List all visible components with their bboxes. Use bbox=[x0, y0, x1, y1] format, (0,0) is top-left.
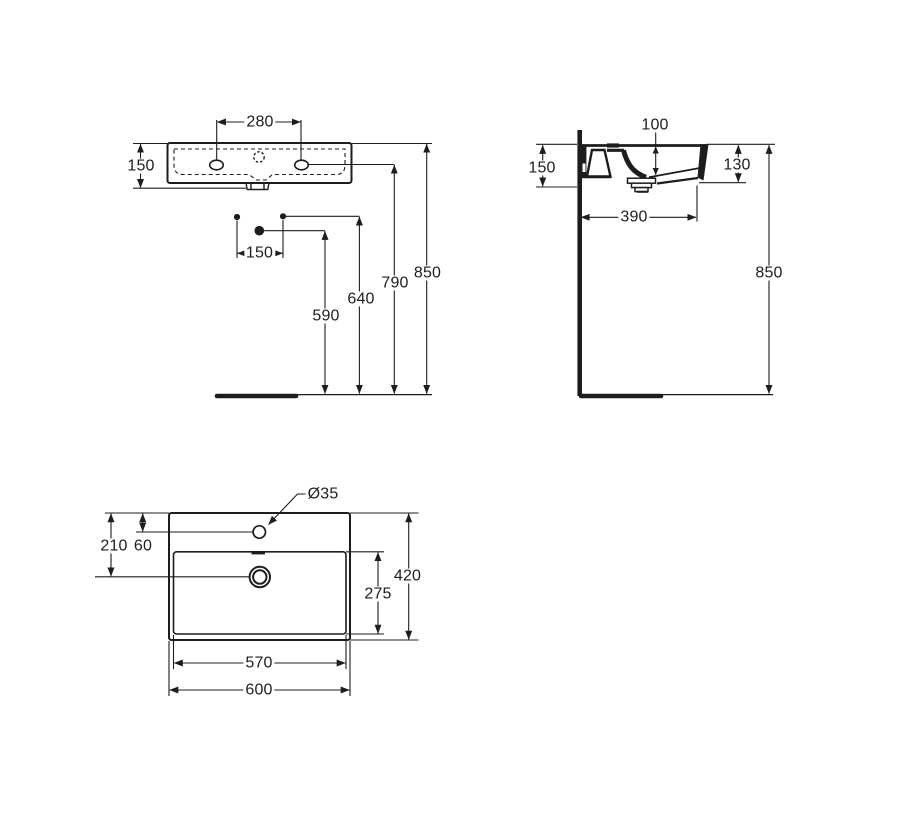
fixing-bracket-section bbox=[587, 150, 611, 177]
plan-waste-drain-inner bbox=[253, 570, 266, 583]
dim-label-bowl-depth-plan: 275 bbox=[362, 587, 393, 602]
side-back-wall-section bbox=[582, 146, 587, 177]
dim-label-bowl-depth: 100 bbox=[639, 118, 670, 133]
dim-label-tap-hole-spacing: 280 bbox=[244, 115, 275, 130]
dim-label-tap-hole-from-rear: 60 bbox=[132, 539, 154, 554]
tap-hole-right bbox=[295, 160, 309, 170]
dim-label-connection-spacing: 150 bbox=[244, 246, 275, 261]
dim-label-overall-width: 600 bbox=[243, 682, 274, 697]
leader-line-tap-hole-diameter bbox=[269, 494, 308, 525]
dim-label-tap-hole-diameter: Ø35 bbox=[306, 487, 341, 502]
dim-label-bowl-width: 570 bbox=[243, 656, 274, 671]
dim-label-tap-hole-height: 790 bbox=[379, 276, 410, 291]
dim-label-rim-height-front: 850 bbox=[412, 266, 443, 281]
bowl-back-wall-curve bbox=[624, 150, 647, 177]
supply-connection-left-dot bbox=[234, 214, 240, 220]
dim-label-overall-depth: 420 bbox=[392, 568, 423, 583]
side-front-edge-section bbox=[698, 144, 709, 180]
dim-label-underside-depth: 390 bbox=[618, 209, 649, 224]
washbasin-technical-drawing: 280 150 150 590 640 790 850 100 150 130 … bbox=[0, 0, 912, 832]
tap-hole-left bbox=[210, 160, 224, 170]
tap-hole-center-dashed bbox=[254, 152, 264, 162]
waste-trap-side bbox=[628, 178, 656, 192]
front-extension-lines bbox=[133, 120, 432, 258]
dim-label-waste-center-from-rear: 210 bbox=[98, 539, 129, 554]
dim-label-rim-height-side: 850 bbox=[753, 265, 784, 280]
side-underside-line bbox=[657, 178, 698, 184]
plan-tap-hole bbox=[253, 526, 265, 538]
drawing-svg bbox=[0, 0, 912, 832]
dim-label-basin-height: 150 bbox=[125, 158, 156, 173]
dim-100-group bbox=[653, 133, 659, 176]
front-elevation-view bbox=[133, 120, 432, 396]
dim-label-connections-height: 640 bbox=[345, 292, 376, 307]
dim-label-front-edge-height: 130 bbox=[721, 158, 752, 173]
dim-label-rear-edge-height: 150 bbox=[526, 161, 557, 176]
dim-label-waste-outlet-height: 590 bbox=[310, 309, 341, 324]
plan-bowl-outline bbox=[174, 552, 347, 634]
front-dimension-lines bbox=[141, 122, 427, 394]
side-back-wall-notch bbox=[583, 164, 586, 173]
